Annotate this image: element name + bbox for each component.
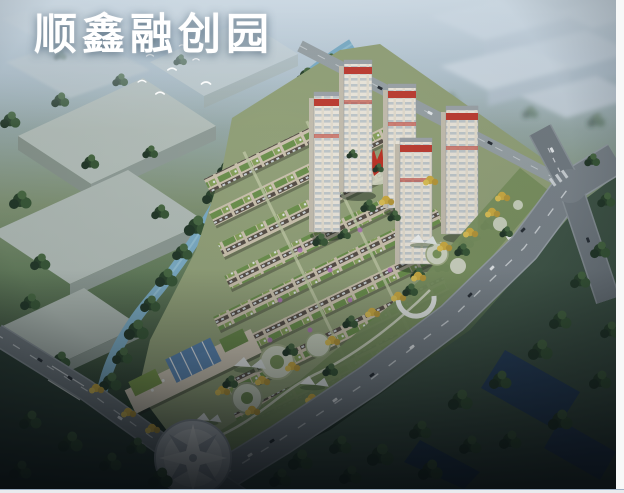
bottom-shadow-overlay: [0, 0, 616, 489]
right-margin: [616, 0, 624, 489]
rendering-image: [0, 0, 616, 489]
bottom-margin: [0, 489, 624, 493]
rendering-scene: [0, 0, 616, 489]
screenshot-root: 顺鑫融创园: [0, 0, 624, 493]
project-title: 顺鑫融创园: [34, 0, 274, 62]
